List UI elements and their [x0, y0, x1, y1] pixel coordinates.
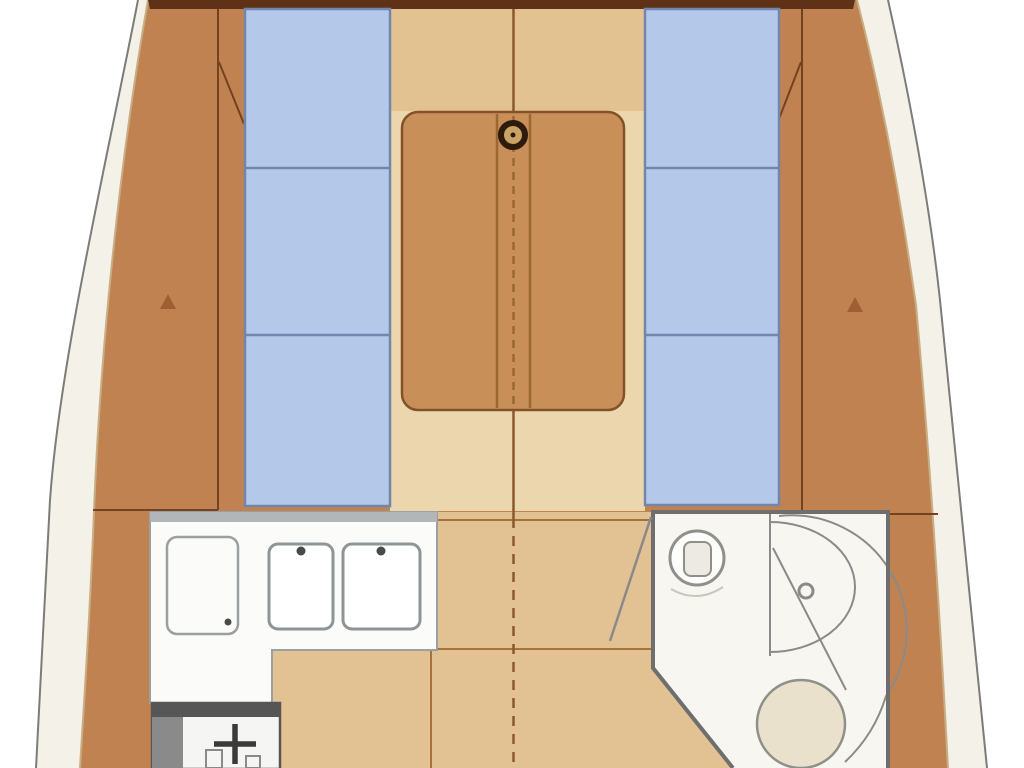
- floor-forward-strip: [390, 9, 645, 111]
- port-settee: [245, 9, 390, 506]
- sink-left: [269, 544, 333, 629]
- washbasin-faucet: [684, 542, 711, 576]
- floor-plan-canvas: [0, 0, 1024, 768]
- saloon-table: [402, 112, 624, 410]
- sink-right: [343, 544, 420, 629]
- icebox-hinge-dot: [225, 619, 232, 626]
- galley-backsplash: [150, 512, 437, 522]
- shower-door-knob: [799, 584, 813, 598]
- floor-plan-drawing: [0, 0, 1024, 768]
- starboard-settee: [645, 9, 779, 505]
- stove-side-panel: [152, 717, 183, 768]
- stove: [152, 703, 280, 768]
- faucet-right: [377, 547, 386, 556]
- stove-gimbal-band: [152, 703, 280, 717]
- starboard-settee-cushions: [645, 9, 779, 505]
- toilet: [757, 680, 845, 768]
- port-settee-cushions: [245, 9, 390, 506]
- forward-bulkhead: [148, 0, 855, 9]
- faucet-left: [297, 547, 306, 556]
- mast-center-dot: [511, 133, 516, 138]
